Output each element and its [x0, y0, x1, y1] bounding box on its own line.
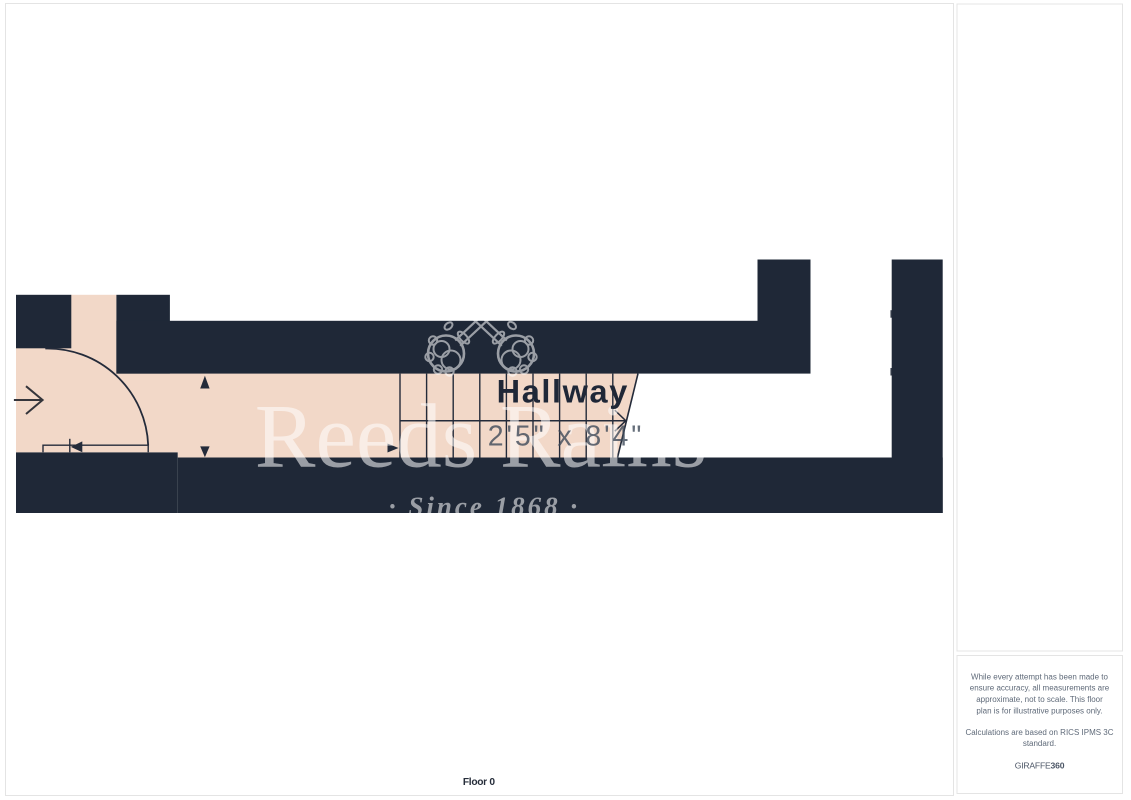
svg-text:plan is for illustrative purpo: plan is for illustrative purposes only.	[976, 707, 1102, 716]
svg-text:Floor 0: Floor 0	[463, 777, 495, 788]
svg-text:Calculations are based on RICS: Calculations are based on RICS IPMS 3C	[965, 728, 1113, 737]
svg-text:2'5" x 8'4": 2'5" x 8'4"	[488, 420, 645, 452]
svg-text:· Since 1868 ·: · Since 1868 ·	[389, 492, 580, 522]
svg-text:approximate, not to scale. Thi: approximate, not to scale. This floor	[976, 695, 1103, 704]
svg-text:standard.: standard.	[1023, 739, 1056, 748]
svg-text:While every attempt has been m: While every attempt has been made to	[971, 672, 1109, 681]
svg-text:Hallway: Hallway	[497, 373, 629, 409]
svg-text:GIRAFFE360: GIRAFFE360	[1015, 760, 1065, 770]
svg-text:ensure accuracy, all measureme: ensure accuracy, all measurements are	[970, 684, 1110, 693]
